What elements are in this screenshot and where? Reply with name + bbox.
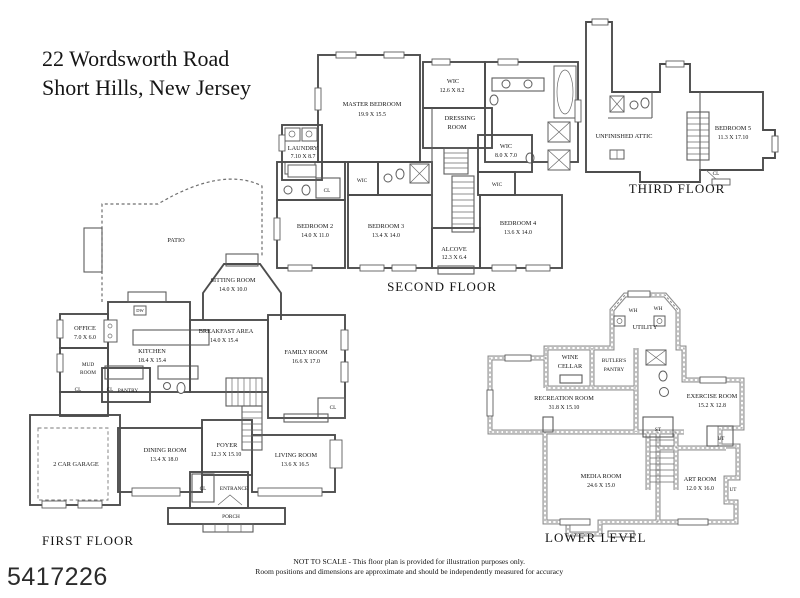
bedroom5-label: BEDROOM 5	[715, 125, 751, 132]
window-marker	[57, 354, 63, 372]
shower-icon	[646, 350, 666, 365]
st-label: ST	[655, 427, 662, 433]
floor-plan-image: 22 Wordsworth Road Short Hills, New Jers…	[0, 0, 800, 598]
disclaimer-line2: Room positions and dimensions are approx…	[255, 567, 563, 577]
ut2-label: UT	[729, 487, 737, 493]
chimney-outline	[84, 228, 102, 272]
sitting-room-label: SITTING ROOM	[211, 277, 256, 284]
counter-icon	[158, 366, 198, 379]
window-marker	[666, 61, 684, 67]
shower-icon	[410, 164, 429, 183]
art-room-label: ART ROOM	[684, 476, 717, 483]
second-floor-title: SECOND FLOOR	[387, 279, 497, 294]
exercise-room-dims: 15.2 X 12.8	[698, 403, 726, 409]
laundry-label: LAUNDRY	[288, 145, 319, 152]
alcove-label: ALCOVE	[441, 246, 467, 253]
laundry-dims: 7.10 X 8.7	[291, 154, 316, 160]
range-icon	[104, 320, 117, 342]
dishwasher-label: DW	[136, 308, 144, 313]
porch-label: PORCH	[222, 514, 240, 520]
wic-small-label: WIC	[492, 182, 503, 188]
window-marker	[505, 355, 531, 361]
shower-icon	[548, 122, 570, 142]
window-marker	[336, 52, 356, 58]
kitchen-dims: 18.4 X 15.4	[138, 358, 166, 364]
bedroom3-walls	[348, 195, 432, 268]
lower-level-walls	[490, 295, 742, 534]
window-marker	[498, 59, 518, 65]
utility-label: UTILITY	[633, 324, 658, 331]
bedroom2-dims: 14.0 X 11.0	[301, 233, 329, 239]
wic-hall-dims: 8.0 X 7.0	[495, 153, 517, 159]
pantry-closet-label: CL	[107, 387, 114, 393]
window-marker	[678, 519, 708, 525]
mud-room-label: MUD	[82, 362, 95, 368]
window-marker	[274, 218, 280, 240]
window-marker	[700, 377, 726, 383]
door-swing	[218, 495, 242, 505]
tub-icon	[554, 66, 576, 118]
wine-cellar-label: WINE	[562, 354, 579, 361]
kitchen-label: KITCHEN	[138, 348, 166, 355]
window-marker	[384, 52, 404, 58]
stairs-icon	[226, 378, 262, 450]
dining-room-dims: 13.4 X 18.0	[150, 457, 178, 463]
wic-bedroom3-label: WIC	[357, 178, 368, 184]
wh1-label: WH	[629, 308, 638, 314]
shower-icon	[548, 150, 570, 170]
window-marker	[341, 330, 348, 350]
stairs-icon	[444, 148, 474, 232]
butlers-pantry-label: BUTLER'S	[602, 358, 627, 364]
window-marker	[575, 100, 581, 122]
breakfast-dims: 14.0 X 15.4	[210, 338, 238, 344]
family-closet-label: CL	[330, 405, 337, 411]
dining-room-label: DINING ROOM	[144, 447, 187, 454]
disclaimer: NOT TO SCALE - This floor plan is provid…	[255, 557, 563, 578]
master-bedroom-label: MASTER BEDROOM	[343, 101, 402, 108]
window-marker	[57, 320, 63, 338]
vanity-counter-icon	[492, 78, 544, 91]
window-marker	[330, 440, 342, 468]
garage-walls	[30, 415, 120, 505]
attic-window-icon	[610, 150, 624, 159]
living-room-label: LIVING ROOM	[275, 452, 318, 459]
photo-id: 5417226	[7, 563, 108, 592]
window-marker	[592, 19, 608, 25]
window-marker	[315, 88, 321, 110]
entrance-closet-label: CL	[200, 486, 207, 492]
toilet-icon	[659, 371, 667, 381]
shower-icon	[610, 96, 624, 112]
mud-closet-label: CL	[75, 387, 82, 393]
closet-walls	[60, 392, 108, 416]
floor-plan-drawing: PATIO SITTING ROOM 14.0 X 10.0 OFFICE 7.…	[0, 0, 800, 598]
sink-icon	[164, 383, 171, 390]
window-marker	[628, 291, 650, 297]
mud-room-label2: ROOM	[80, 370, 96, 376]
window-marker	[279, 135, 285, 151]
art-room-dims: 12.0 X 16.0	[686, 486, 714, 492]
recreation-room-label: RECREATION ROOM	[534, 395, 594, 402]
lower-level-title: LOWER LEVEL	[545, 530, 647, 545]
kitchen-island	[133, 330, 209, 345]
window-marker	[341, 362, 348, 382]
ut1-label: UT	[717, 436, 725, 442]
window-marker	[772, 136, 778, 152]
toilet-icon	[490, 95, 498, 105]
breakfast-label: BREAKFAST AREA	[199, 328, 254, 335]
wic-master-walls	[423, 62, 485, 108]
butlers-pantry-label2: PANTRY	[604, 367, 625, 373]
sink-icon	[630, 101, 638, 109]
porch-steps-icon	[203, 524, 253, 532]
dressing-room-label: DRESSING	[445, 115, 476, 122]
sink-icon	[524, 80, 532, 88]
window-marker	[526, 265, 550, 271]
window-marker	[560, 519, 590, 525]
wic-master-label: WIC	[447, 78, 459, 85]
window-marker	[78, 501, 102, 508]
media-room-label: MEDIA ROOM	[581, 473, 622, 480]
alcove-dims: 12.3 X 6.4	[442, 255, 467, 261]
kitchen-bay-window	[128, 292, 166, 302]
master-bedroom-dims: 19.9 X 15.5	[358, 112, 386, 118]
attic-label: UNFINISHED ATTIC	[596, 133, 653, 140]
wic-hall-label: WIC	[500, 143, 512, 150]
window-marker	[360, 265, 384, 271]
third-floor-title: THIRD FLOOR	[629, 181, 726, 196]
toilet-icon	[177, 383, 185, 394]
third-closet-label: CL	[713, 171, 720, 177]
stairs-icon	[687, 112, 709, 160]
recreation-room-dims: 31.8 X 15.10	[549, 405, 580, 411]
sitting-room-dims: 14.0 X 10.0	[219, 287, 247, 293]
window-marker	[42, 501, 66, 508]
living-room-dims: 13.6 X 16.5	[281, 462, 309, 468]
window-marker	[392, 265, 416, 271]
toilet-icon	[396, 169, 404, 179]
window-marker	[492, 265, 516, 271]
bedroom2-label: BEDROOM 2	[297, 223, 333, 230]
family-room-walls	[268, 315, 345, 418]
bedroom2-closet-label: CL	[324, 188, 331, 194]
bedroom3-dims: 13.4 X 14.0	[372, 233, 400, 239]
garage-label: 2 CAR GARAGE	[53, 461, 99, 468]
window-marker	[288, 265, 312, 271]
pantry-label: PANTRY	[118, 388, 139, 394]
tub-icon	[288, 165, 316, 177]
wine-cellar-label2: CELLAR	[558, 363, 583, 370]
wh2-label: WH	[654, 306, 663, 312]
lower-level-plan: WH WH UTILITY WINE CELLAR BUTLER'S PANTR…	[487, 291, 742, 545]
window-marker	[432, 59, 450, 65]
bedroom4-dims: 13.6 X 14.0	[504, 230, 532, 236]
bedroom3-label: BEDROOM 3	[368, 223, 404, 230]
family-room-dims: 16.6 X 17.0	[292, 359, 320, 365]
dressing-room-label2: ROOM	[448, 124, 467, 131]
bedroom4-label: BEDROOM 4	[500, 220, 537, 227]
toilet-icon	[302, 185, 310, 195]
second-floor-plan: MASTER BEDROOM 19.9 X 15.5 LAUNDRY 7.10 …	[274, 52, 581, 294]
exercise-room-label: EXERCISE ROOM	[687, 393, 738, 400]
first-floor-title: FIRST FLOOR	[42, 533, 134, 548]
third-floor-plan: UNFINISHED ATTIC BEDROOM 5 11.3 X 17.10 …	[586, 19, 778, 196]
wic-master-dims: 12.6 X 8.2	[440, 88, 465, 94]
window-marker	[258, 488, 322, 496]
water-heater-icon	[614, 316, 625, 326]
foyer-label: FOYER	[217, 442, 238, 449]
media-room-dims: 24.6 X 15.0	[587, 483, 615, 489]
wine-rack-icon	[560, 375, 582, 383]
patio-label: PATIO	[167, 237, 185, 244]
disclaimer-line1: NOT TO SCALE - This floor plan is provid…	[255, 557, 563, 567]
sink-icon	[284, 186, 292, 194]
sink-icon	[660, 388, 669, 397]
family-room-label: FAMILY ROOM	[284, 349, 328, 356]
stairs-icon	[650, 440, 674, 482]
entrance-label: ENTRANCE	[220, 486, 248, 492]
window-marker	[487, 390, 493, 416]
toilet-icon	[641, 98, 649, 108]
office-dims: 7.0 X 6.0	[74, 335, 96, 341]
bedroom5-dims: 11.3 X 17.10	[718, 135, 749, 141]
window-marker	[132, 488, 180, 496]
sink-icon	[384, 174, 392, 182]
sink-icon	[502, 80, 510, 88]
office-label: OFFICE	[74, 325, 96, 332]
master-bedroom-walls	[318, 55, 420, 162]
foyer-dims: 12.3 X 15.10	[211, 452, 242, 458]
